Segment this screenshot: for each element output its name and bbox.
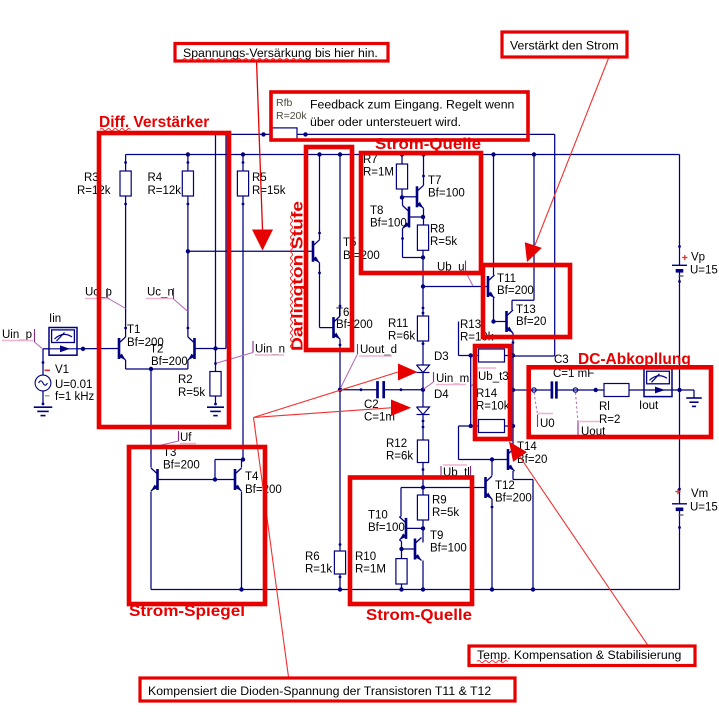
svg-text:R2: R2 — [178, 374, 193, 386]
svg-text:Bf=200: Bf=200 — [336, 319, 373, 331]
svg-text:R10: R10 — [355, 551, 376, 563]
svg-text:R5: R5 — [252, 172, 267, 184]
svg-text:U=15: U=15 — [690, 265, 718, 277]
svg-text:R13: R13 — [460, 319, 481, 331]
svg-text:Uout_d: Uout_d — [360, 344, 397, 356]
svg-text:Rfb: Rfb — [276, 97, 293, 109]
svg-text:U0: U0 — [540, 418, 555, 430]
svg-text:R3: R3 — [84, 172, 99, 184]
svg-text:R=5k: R=5k — [432, 507, 459, 519]
svg-text:R9: R9 — [432, 495, 447, 507]
svg-text:U=15: U=15 — [690, 502, 718, 514]
svg-text:Bf=200: Bf=200 — [163, 460, 200, 472]
svg-text:Bf=200: Bf=200 — [151, 356, 188, 368]
svg-text:R7: R7 — [363, 154, 378, 166]
svg-text:Bf=100: Bf=100 — [428, 188, 465, 200]
svg-text:Bf=200: Bf=200 — [497, 285, 534, 297]
svg-text:R=6k: R=6k — [386, 451, 413, 463]
svg-text:V1: V1 — [55, 364, 69, 376]
svg-text:R=12k: R=12k — [77, 185, 111, 197]
svg-text:T4: T4 — [245, 471, 259, 483]
svg-text:f=1 kHz: f=1 kHz — [55, 391, 95, 403]
svg-text:Bf=100: Bf=100 — [430, 543, 467, 555]
svg-text:Strom-Spiegel: Strom-Spiegel — [129, 603, 245, 620]
svg-text:Temp. Kompensation & Stabilisi: Temp. Kompensation & Stabilisierung — [477, 648, 682, 662]
svg-text:R8: R8 — [430, 224, 445, 236]
svg-text:Bf=100: Bf=100 — [368, 522, 405, 534]
svg-text:Bf=200: Bf=200 — [495, 493, 532, 505]
svg-text:T13: T13 — [516, 304, 536, 316]
svg-text:D4: D4 — [434, 389, 449, 401]
svg-text:T10: T10 — [368, 510, 388, 522]
svg-text:T7: T7 — [428, 175, 441, 187]
svg-text:T6: T6 — [336, 307, 349, 319]
svg-text:Uf: Uf — [180, 432, 192, 444]
svg-text:Kompensiert die Dioden-Spannun: Kompensiert die Dioden-Spannung der Tran… — [148, 684, 491, 698]
svg-text:Feedback zum Eingang. Regelt w: Feedback zum Eingang. Regelt wenn — [310, 98, 515, 112]
svg-text:Strom-Quelle: Strom-Quelle — [375, 136, 481, 153]
svg-text:T9: T9 — [430, 530, 443, 542]
svg-text:R=1k: R=1k — [305, 564, 332, 576]
svg-text:Bf=100: Bf=100 — [370, 218, 407, 230]
svg-text:R=6k: R=6k — [388, 331, 415, 343]
svg-text:T12: T12 — [495, 480, 515, 492]
svg-text:R=5k: R=5k — [430, 236, 457, 248]
svg-text:Bf=20: Bf=20 — [516, 316, 546, 328]
svg-text:Strom-Quelle: Strom-Quelle — [366, 607, 472, 624]
svg-text:C3: C3 — [554, 354, 569, 366]
svg-text:Ub_t3: Ub_t3 — [478, 371, 509, 383]
svg-text:Rl: Rl — [599, 401, 610, 413]
svg-text:R=10k: R=10k — [476, 401, 510, 413]
svg-text:Iin: Iin — [49, 313, 61, 325]
svg-text:Uc_n: Uc_n — [147, 287, 174, 299]
svg-text:R=20k: R=20k — [276, 110, 307, 122]
svg-text:U=0.01: U=0.01 — [55, 379, 92, 391]
svg-text:Iout: Iout — [639, 400, 659, 412]
svg-text:R11: R11 — [388, 318, 408, 330]
svg-text:R=15k: R=15k — [252, 185, 286, 197]
svg-text:Uin_p: Uin_p — [2, 329, 32, 341]
svg-text:R=5k: R=5k — [178, 387, 205, 399]
svg-text:R14: R14 — [476, 388, 498, 400]
svg-text:T8: T8 — [370, 205, 383, 217]
svg-text:R=1M: R=1M — [363, 167, 394, 179]
svg-text:R=1M: R=1M — [355, 564, 386, 576]
svg-text:C=1 mF: C=1 mF — [553, 368, 594, 380]
svg-text:T2: T2 — [150, 344, 163, 356]
svg-text:Verstärkt den Strom: Verstärkt den Strom — [510, 39, 619, 53]
svg-text:DC-Abkopllung: DC-Abkopllung — [578, 351, 691, 368]
svg-text:C=1m: C=1m — [364, 412, 395, 424]
svg-text:Spannungs-Versärkung bis hier: Spannungs-Versärkung bis hier hin. — [183, 46, 378, 60]
svg-text:über oder untersteuert wird.: über oder untersteuert wird. — [310, 115, 461, 129]
svg-text:T11: T11 — [497, 273, 516, 285]
svg-text:Uin_m: Uin_m — [436, 373, 469, 385]
svg-text:T1: T1 — [127, 324, 140, 336]
svg-text:R12: R12 — [386, 438, 407, 450]
svg-text:Uin_n: Uin_n — [255, 344, 285, 356]
svg-text:R=2: R=2 — [599, 414, 620, 426]
svg-text:Vm: Vm — [691, 488, 708, 500]
svg-text:Vp: Vp — [691, 252, 705, 264]
svg-text:R6: R6 — [305, 551, 320, 563]
svg-text:D3: D3 — [434, 351, 449, 363]
svg-text:R4: R4 — [148, 172, 163, 184]
svg-text:R=12k: R=12k — [148, 185, 182, 197]
